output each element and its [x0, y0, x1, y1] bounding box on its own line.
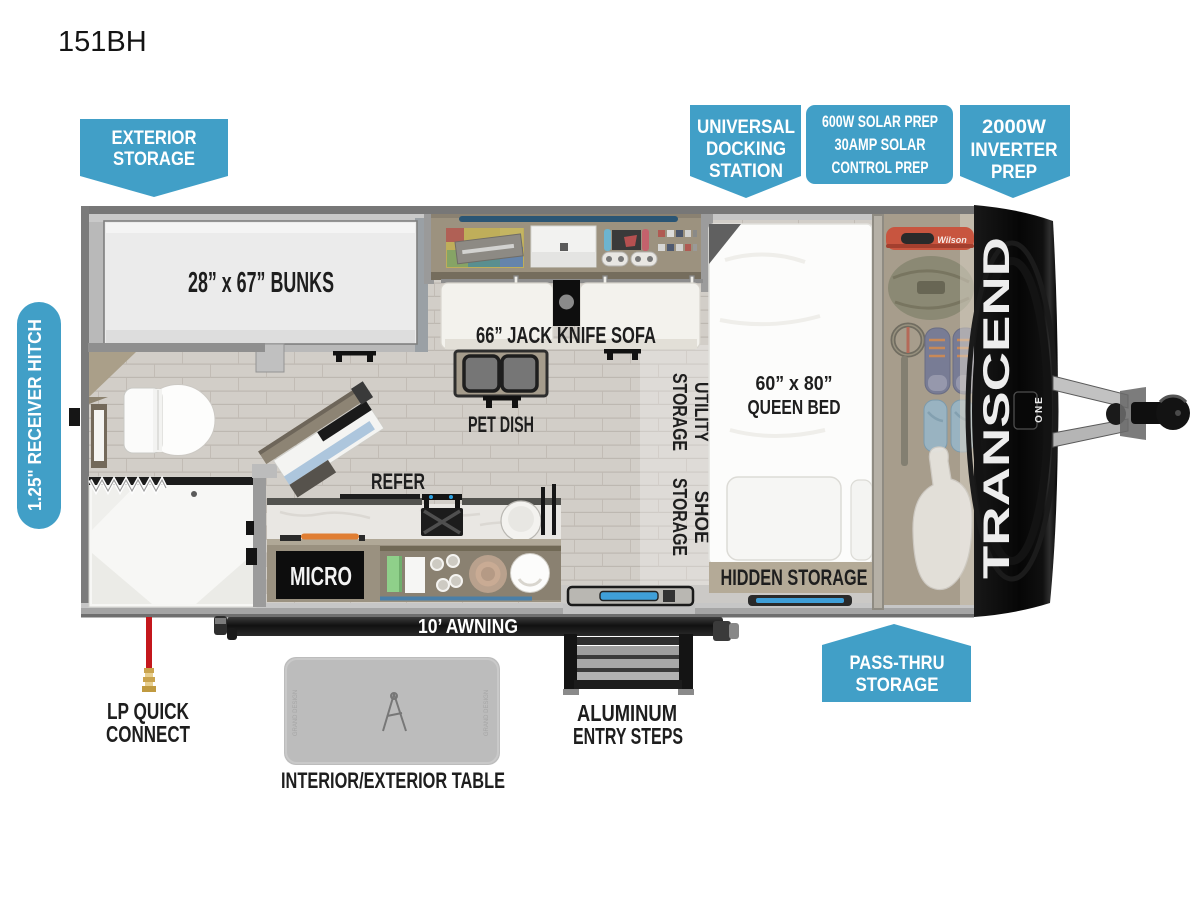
- svg-text:STATION: STATION: [709, 161, 783, 182]
- svg-text:MICRO: MICRO: [290, 561, 352, 591]
- svg-text:PASS-THRU: PASS-THRU: [850, 653, 945, 674]
- svg-text:HIDDEN STORAGE: HIDDEN STORAGE: [721, 565, 868, 590]
- svg-text:151BH: 151BH: [58, 26, 147, 58]
- svg-text:Wilson: Wilson: [937, 235, 967, 245]
- svg-text:28” x 67” BUNKS: 28” x 67” BUNKS: [188, 267, 334, 299]
- svg-text:1.25" RECEIVER HITCH: 1.25" RECEIVER HITCH: [25, 319, 45, 511]
- svg-text:STORAGE: STORAGE: [668, 478, 690, 556]
- svg-text:GRAND DESIGN: GRAND DESIGN: [484, 690, 490, 736]
- svg-text:PET DISH: PET DISH: [468, 412, 534, 437]
- svg-text:REFER: REFER: [371, 469, 425, 494]
- svg-text:DOCKING: DOCKING: [706, 139, 786, 160]
- svg-text:600W SOLAR PREP: 600W SOLAR PREP: [822, 113, 938, 131]
- svg-text:INVERTER: INVERTER: [971, 140, 1058, 161]
- svg-text:PREP: PREP: [991, 162, 1037, 183]
- svg-text:30AMP SOLAR: 30AMP SOLAR: [835, 136, 926, 154]
- svg-text:ENTRY STEPS: ENTRY STEPS: [573, 723, 683, 749]
- svg-text:60” x 80”: 60” x 80”: [756, 373, 833, 395]
- svg-text:EXTERIOR: EXTERIOR: [112, 128, 197, 149]
- svg-text:GRAND DESIGN: GRAND DESIGN: [293, 690, 299, 736]
- svg-text:66” JACK KNIFE SOFA: 66” JACK KNIFE SOFA: [476, 322, 656, 348]
- svg-text:CONNECT: CONNECT: [106, 721, 190, 747]
- svg-text:ONE: ONE: [1034, 395, 1045, 423]
- svg-text:UNIVERSAL: UNIVERSAL: [697, 117, 795, 138]
- svg-text:2000W: 2000W: [982, 117, 1046, 138]
- svg-text:STORAGE: STORAGE: [113, 149, 195, 170]
- svg-text:TRANSCEND: TRANSCEND: [976, 237, 1017, 579]
- svg-text:STORAGE: STORAGE: [668, 373, 690, 451]
- svg-text:CONTROL PREP: CONTROL PREP: [832, 159, 929, 177]
- svg-text:STORAGE: STORAGE: [856, 675, 939, 696]
- svg-text:INTERIOR/EXTERIOR TABLE: INTERIOR/EXTERIOR TABLE: [281, 768, 505, 793]
- svg-text:QUEEN BED: QUEEN BED: [748, 397, 841, 419]
- svg-text:10’ AWNING: 10’ AWNING: [418, 616, 518, 638]
